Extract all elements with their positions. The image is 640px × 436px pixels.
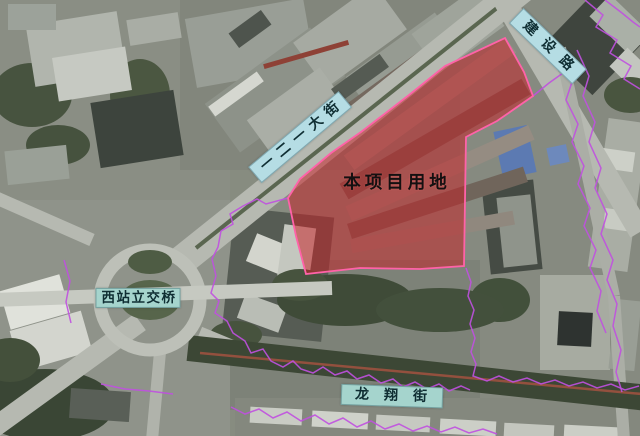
label-longxiang-street: 龙翔街 [341,384,444,408]
map-canvas [0,0,640,436]
satellite-map: 一二一大街 建设路 西站立交桥 龙翔街 本项目用地 [0,0,640,436]
label-project-site: 本项目用地 [343,174,451,192]
label-xizhan-overpass: 西站立交桥 [96,288,181,308]
